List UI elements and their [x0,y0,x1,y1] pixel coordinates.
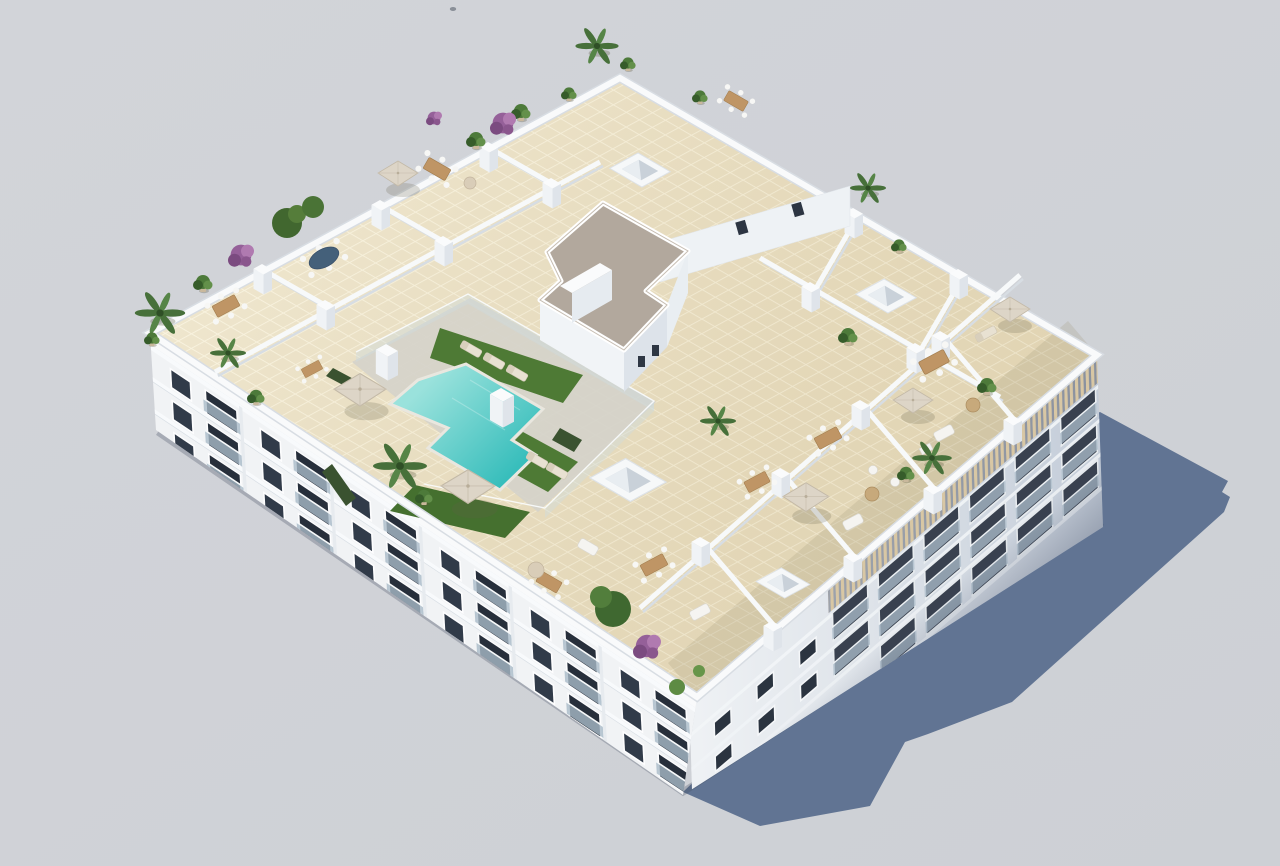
pouf [464,177,476,189]
bird [450,7,456,11]
apartment-aerial-render: Aerial isometric 3D render of a white ap… [0,0,1280,866]
render-canvas: Aerial isometric 3D render of a white ap… [0,0,1280,866]
pouf [528,562,544,578]
vent-pillar [490,388,514,428]
vent-pillar [376,344,398,381]
round-table [966,398,980,412]
armchair [891,478,900,487]
armchair [869,466,878,475]
round-table [865,487,879,501]
